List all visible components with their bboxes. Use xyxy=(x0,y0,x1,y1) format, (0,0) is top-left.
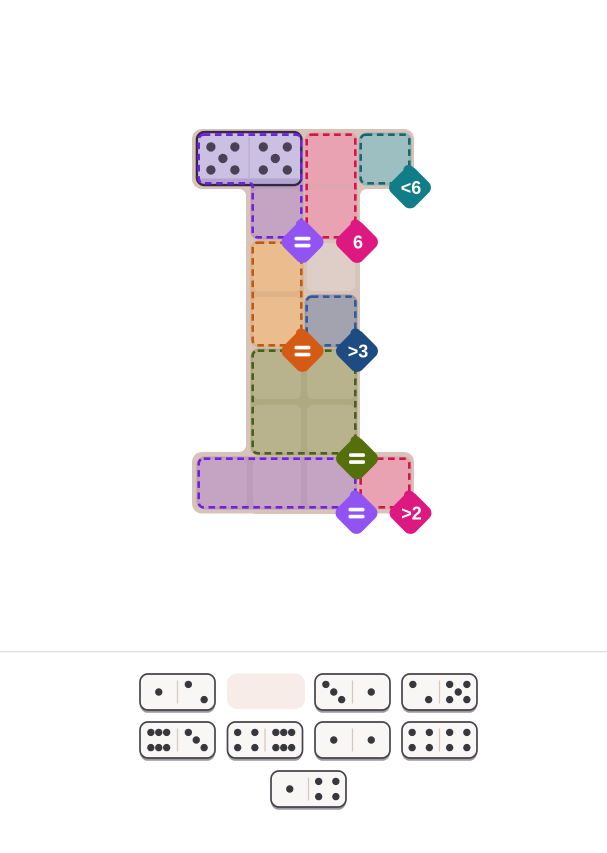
svg-text:>3: >3 xyxy=(348,341,369,361)
svg-text:>2: >2 xyxy=(401,503,422,523)
svg-text:<6: <6 xyxy=(401,178,422,198)
svg-text:6: 6 xyxy=(353,232,363,252)
